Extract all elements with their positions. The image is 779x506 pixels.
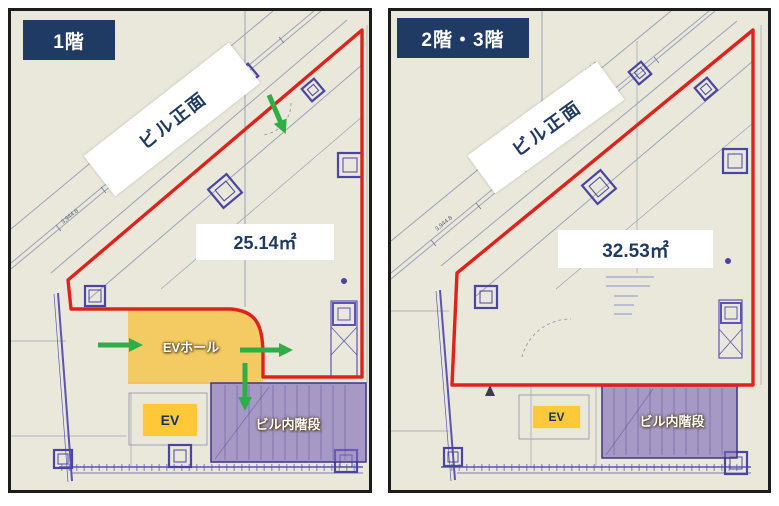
elevator-box-2f-3f: EV: [532, 405, 581, 429]
floor-panel-2f-3f: 4,611.2 6,598.1 3,944.8: [388, 8, 771, 493]
internal-stairs-label-1f: ビル内階段: [227, 414, 349, 433]
internal-stairs-label-2f-3f: ビル内階段: [612, 411, 732, 430]
elevator-box-1f: EV: [142, 403, 198, 437]
area-label-2f-3f: 32.53㎡: [558, 230, 713, 268]
drawing-annotation-lines: [606, 277, 654, 314]
floor-panel-1f: 4,611.2 6,598.1 3,944.8: [8, 8, 372, 493]
svg-text:3,944.8: 3,944.8: [60, 208, 80, 226]
floor-plan-page: 4,611.2 6,598.1 3,944.8: [0, 0, 779, 506]
floor-label-2f-3f: 2階・3階: [397, 18, 529, 58]
area-label-1f: 25.14㎡: [196, 224, 334, 260]
ev-hall-label: EVホール: [145, 337, 237, 356]
floor-label-1f: 1階: [23, 20, 115, 60]
